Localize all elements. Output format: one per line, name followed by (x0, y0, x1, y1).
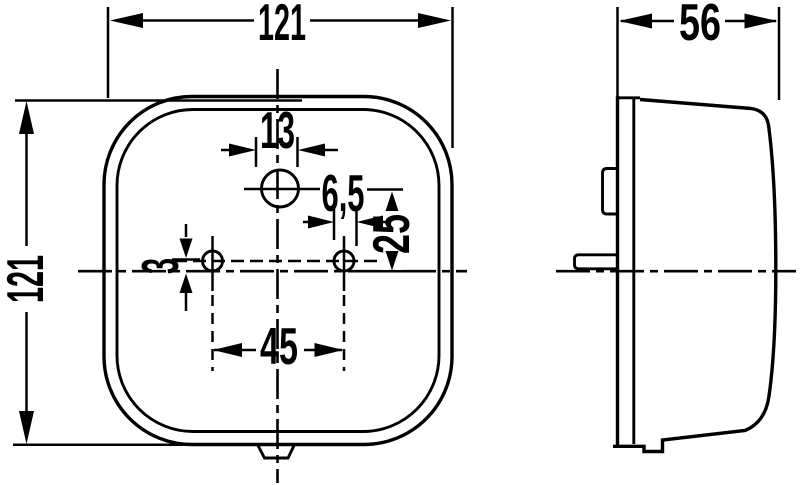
side-tab (603, 169, 618, 215)
arrowhead-left (298, 144, 325, 157)
dim-hole-line-offset: 3 (132, 224, 200, 311)
arrowhead-right (315, 343, 344, 357)
side-view (556, 96, 796, 452)
lamp-bottom-tab (258, 445, 295, 459)
arrowhead-down (19, 411, 34, 444)
housing-outline (613, 100, 776, 452)
arrowhead-up (19, 101, 34, 134)
arrowhead-left (213, 343, 242, 357)
arrowhead-left (619, 14, 652, 29)
dim-label-top-hole-diameter: 13 (260, 102, 295, 160)
arrowhead-up (180, 274, 193, 294)
dim-label-hole-line-offset: 3 (132, 258, 190, 274)
dim-label-front-width: 121 (258, 0, 306, 52)
dim-label-front-height: 121 (0, 255, 55, 303)
arrowhead-left (110, 13, 143, 28)
dim-top-hole-offset: 25 (361, 192, 432, 272)
arrowhead-right (229, 144, 256, 157)
dim-side-depth: 56 (618, 0, 780, 100)
arrowhead-down (180, 239, 193, 259)
dim-label-hole-spacing: 45 (260, 318, 298, 376)
dim-top-hole-diameter: 13 (221, 102, 338, 167)
dim-label-side-depth: 56 (679, 0, 721, 52)
dim-hole-spacing: 45 (213, 318, 344, 376)
dim-label-small-hole-diameter: 6,5 (322, 165, 365, 223)
dim-label-top-hole-offset: 25 (363, 214, 421, 254)
technical-drawing-canvas: 121 121 13 6,5 25 (0, 0, 800, 485)
mounting-stud (575, 255, 617, 269)
arrowhead-right (418, 13, 451, 28)
arrowhead-up (386, 192, 399, 212)
arrowhead-right (745, 14, 778, 29)
